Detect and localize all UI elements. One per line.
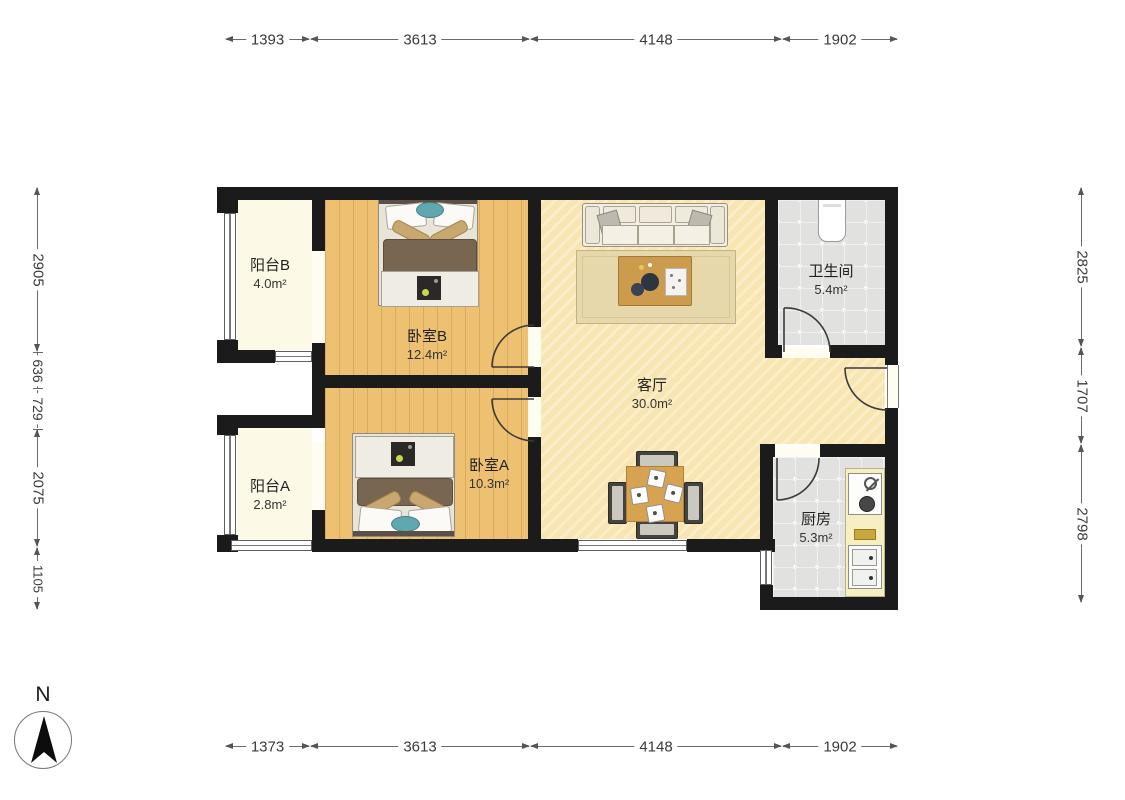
bed-duvet: [383, 239, 477, 275]
wall-divider-living: [528, 200, 541, 327]
room-label-living: 客厅 30.0m²: [582, 377, 722, 412]
dimension-value: 636: [30, 355, 46, 386]
compass-needle-icon: [15, 712, 73, 770]
room-label-balcony-b: 阳台B 4.0m²: [200, 257, 340, 292]
room-label-bedroom-b: 卧室B 12.4m²: [357, 328, 497, 363]
cooktop-unit: [848, 473, 882, 515]
wall-balcony-a-north: [225, 415, 325, 428]
dimension-right-2: 1707: [1074, 347, 1090, 444]
room-area: 5.4m²: [761, 281, 901, 298]
wall-bathroom-south: [830, 345, 898, 358]
dimension-tick: [33, 352, 43, 353]
decor-dot: [648, 263, 652, 267]
fixture-detail: [823, 204, 841, 207]
wall-kitchen-north: [820, 444, 898, 457]
tray-dot: [678, 279, 681, 282]
wall-kitchen-south: [760, 597, 898, 610]
dimension-top-4: 1902: [782, 32, 898, 48]
drain-dot: [869, 576, 873, 580]
burner: [859, 496, 875, 512]
sofa-armrest: [710, 206, 725, 244]
wall-balcony-b-east: [312, 200, 325, 251]
sofa-back-cushion: [639, 206, 672, 223]
dimension-value: 2905: [30, 249, 47, 290]
room-name: 厨房: [746, 511, 886, 529]
floorplan: 阳台B 4.0m² 卧室B 12.4m² 客厅 30.0m² 卫生间 5.4m²…: [0, 0, 1125, 800]
dining-table: [626, 466, 684, 522]
room-area: 30.0m²: [582, 395, 722, 412]
place-setting: [630, 486, 649, 505]
dimension-left-5: 1105: [30, 547, 46, 610]
dimension-value: 1393: [246, 32, 289, 49]
room-label-bedroom-a: 卧室A 10.3m²: [419, 457, 559, 492]
compass: N: [10, 683, 76, 778]
dimension-value: 2798: [1074, 503, 1091, 544]
room-area: 10.3m²: [419, 475, 559, 492]
dining-chair-south: [636, 520, 678, 539]
entry-door: [839, 362, 891, 414]
dimension-value: 1707: [1074, 375, 1091, 416]
bedside-device: [391, 442, 415, 466]
decor-dot: [639, 265, 644, 270]
dimension-bottom-3: 4148: [530, 739, 782, 755]
room-name: 卧室B: [357, 328, 497, 346]
bedroom-b-bed: [378, 198, 478, 306]
device-light: [396, 455, 403, 462]
dimension-value: 1373: [246, 739, 289, 756]
dimension-bottom-1: 1373: [225, 739, 310, 755]
wall-top: [225, 187, 898, 200]
sofa-seat-cushion: [638, 225, 674, 245]
dining-chair-east: [684, 482, 703, 524]
double-sink: [848, 545, 882, 589]
dimension-left-4: 2075: [30, 429, 46, 547]
device-dot: [408, 445, 412, 449]
kitchen-door: [771, 452, 825, 504]
bathroom-door: [778, 302, 834, 354]
bed-headboard: [353, 531, 454, 536]
dimension-right-3: 2798: [1074, 444, 1090, 603]
bed-cushion: [391, 516, 420, 532]
room-area: 5.3m²: [746, 529, 886, 546]
dimension-value: 2075: [30, 467, 47, 508]
room-area: 12.4m²: [357, 346, 497, 363]
dimension-bottom-4: 1902: [782, 739, 898, 755]
dimension-value: 1902: [818, 739, 861, 756]
room-label-bathroom: 卫生间 5.4m²: [761, 263, 901, 298]
room-name: 卧室A: [419, 457, 559, 475]
drain-dot: [869, 556, 873, 560]
chair-cushion: [612, 486, 623, 520]
dimension-value: 729: [30, 393, 46, 424]
dimension-tick: [33, 388, 43, 389]
chair-cushion: [688, 486, 699, 520]
place-setting: [646, 504, 666, 524]
room-name: 阳台B: [200, 257, 340, 275]
dimension-value: 1902: [818, 32, 861, 49]
device-dot: [434, 279, 438, 283]
place-setting: [663, 483, 684, 504]
compass-north-label: N: [10, 683, 76, 707]
valve-slash: [866, 478, 879, 491]
sink-basin: [852, 569, 877, 586]
window-balcony-a-south: [231, 540, 312, 551]
serving-tray: [665, 268, 687, 296]
bedside-device: [417, 276, 441, 300]
device-light: [422, 289, 429, 296]
dimension-value: 3613: [398, 32, 441, 49]
dimension-left-2: 636: [30, 352, 46, 389]
room-label-kitchen: 厨房 5.3m²: [746, 511, 886, 546]
dimension-value: 4148: [634, 32, 677, 49]
dimension-tick: [33, 429, 43, 430]
sofa-armrest: [585, 206, 600, 244]
room-area: 4.0m²: [200, 275, 340, 292]
coffee-table: [618, 256, 692, 306]
wall-right-lower: [885, 408, 898, 610]
room-area: 2.8m²: [200, 496, 340, 513]
compass-circle: [14, 711, 72, 769]
teacup: [631, 283, 644, 296]
window-end-block: [217, 340, 238, 363]
dining-chair-west: [608, 482, 627, 524]
dimension-value: 3613: [398, 739, 441, 756]
sink-basin: [852, 549, 877, 566]
bedroom-a-door: [484, 395, 536, 443]
sofa-seat-cushion: [674, 225, 710, 245]
dimension-top-2: 3613: [310, 32, 530, 48]
place-setting: [646, 468, 666, 488]
window-kitchen-west: [760, 550, 772, 585]
room-name: 卫生间: [761, 263, 901, 281]
window-end-block: [217, 415, 238, 435]
room-label-balcony-a: 阳台A 2.8m²: [200, 478, 340, 513]
chair-cushion: [640, 524, 674, 535]
sofa: [582, 203, 728, 247]
tray-dot: [672, 286, 675, 289]
dimension-value: 4148: [634, 739, 677, 756]
wall-bottom-bedroom-a: [312, 539, 578, 552]
tray-dot: [670, 274, 673, 277]
chair-cushion: [640, 455, 674, 466]
room-name: 阳台A: [200, 478, 340, 496]
dimension-top-3: 4148: [530, 32, 782, 48]
window-notch: [275, 351, 312, 362]
room-name: 客厅: [582, 377, 722, 395]
bathroom-fixture: [818, 196, 846, 242]
dimension-left-3: 729: [30, 389, 46, 429]
dimension-value: 1105: [31, 561, 46, 597]
wall-between-bedrooms: [312, 375, 541, 388]
dimension-left-1: 2905: [30, 187, 46, 352]
dimension-right-1: 2825: [1074, 187, 1090, 347]
gas-valve-icon: [864, 477, 877, 490]
dimension-bottom-2: 3613: [310, 739, 530, 755]
bed-cushion: [416, 202, 444, 218]
dimension-value: 2825: [1074, 246, 1091, 287]
window-end-block: [217, 187, 238, 213]
sofa-seat-cushion: [602, 225, 638, 245]
window-living-south: [578, 540, 687, 551]
dimension-top-1: 1393: [225, 32, 310, 48]
wall-kitchen-west: [760, 585, 773, 597]
